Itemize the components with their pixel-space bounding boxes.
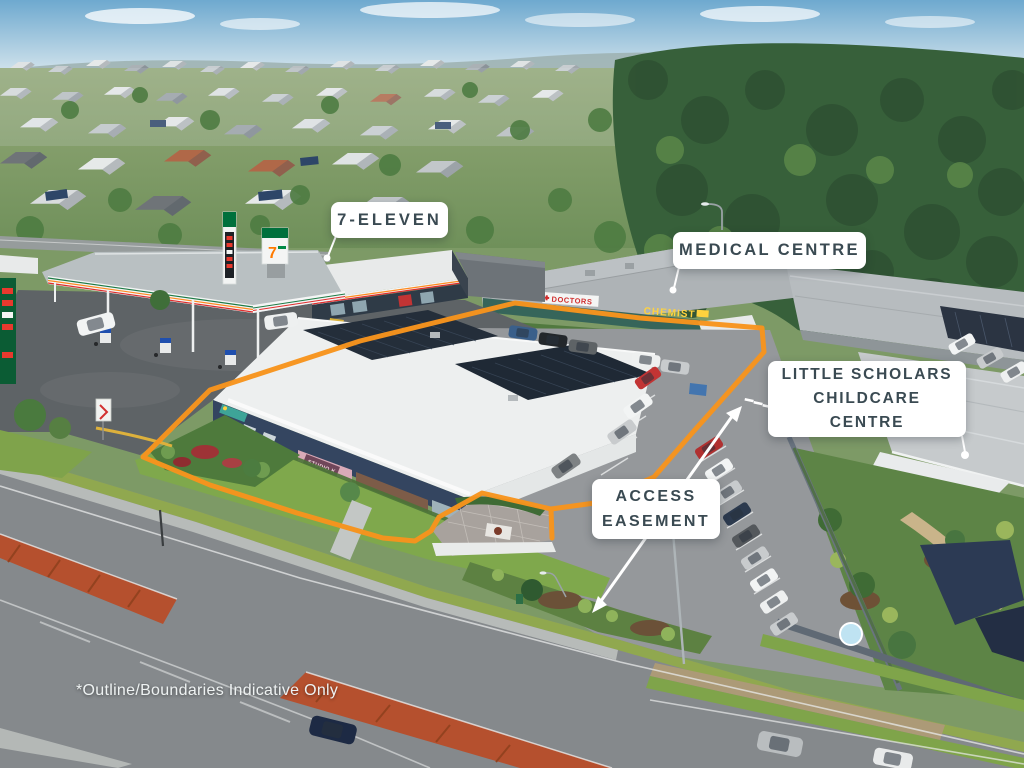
left-price-board bbox=[0, 278, 16, 384]
callout-medical-centre: MEDICAL CENTRE bbox=[673, 232, 866, 269]
callout-childcare-centre: LITTLE SCHOLARS CHILDCARE CENTRE bbox=[768, 361, 966, 437]
callout-medical-centre-label: MEDICAL CENTRE bbox=[679, 239, 860, 261]
callout-childcare-line-3: CENTRE bbox=[830, 411, 905, 435]
childcare-logo-roundel bbox=[840, 623, 862, 645]
accessible-bay bbox=[689, 383, 707, 396]
svg-text:7: 7 bbox=[268, 245, 277, 262]
boundary-disclaimer-text: *Outline/Boundaries Indicative Only bbox=[76, 682, 338, 700]
small-green-sign bbox=[516, 594, 523, 604]
callout-access-easement-line-1: ACCESS bbox=[615, 484, 696, 509]
callout-childcare-line-1: LITTLE SCHOLARS bbox=[782, 363, 953, 387]
aerial-property-photo: DOCTORS CHEMIST bbox=[0, 0, 1024, 768]
callout-seven-eleven-label: 7-ELEVEN bbox=[337, 209, 442, 231]
callout-seven-eleven: 7-ELEVEN bbox=[331, 202, 448, 238]
corner-bush bbox=[14, 399, 46, 431]
callout-access-easement-line-2: EASEMENT bbox=[602, 509, 710, 534]
callout-childcare-line-2: CHILDCARE bbox=[813, 387, 920, 411]
bus-shelter bbox=[0, 255, 38, 274]
callout-access-easement: ACCESS EASEMENT bbox=[592, 479, 720, 539]
price-pylon-sign bbox=[223, 212, 236, 284]
